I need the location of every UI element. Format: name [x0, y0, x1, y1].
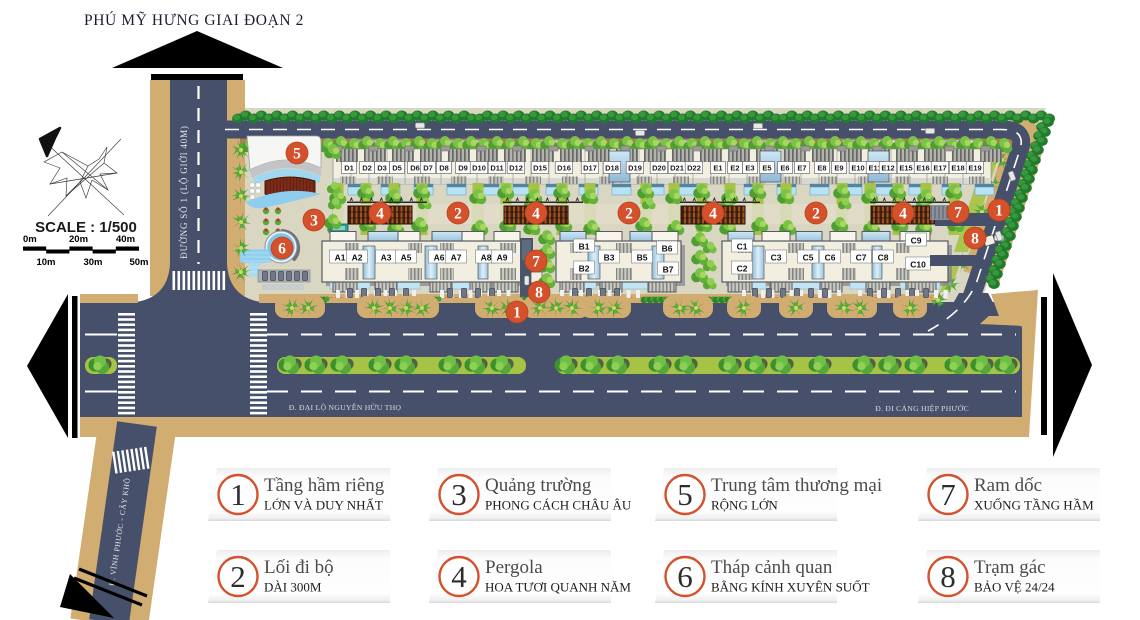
svg-text:B3: B3 [604, 253, 615, 263]
svg-text:A8: A8 [481, 253, 492, 263]
svg-text:D20: D20 [652, 164, 666, 173]
svg-text:C6: C6 [825, 253, 836, 263]
svg-text:50m: 50m [129, 257, 148, 268]
svg-text:D18: D18 [605, 164, 619, 173]
svg-text:B1: B1 [579, 242, 590, 252]
svg-text:E7: E7 [797, 164, 806, 173]
svg-text:B2: B2 [579, 264, 590, 274]
svg-text:4: 4 [899, 206, 907, 223]
svg-text:D17: D17 [583, 164, 597, 173]
svg-text:Ram dốc: Ram dốc [974, 475, 1042, 496]
svg-text:D12: D12 [509, 164, 523, 173]
svg-text:LỚN VÀ DUY NHẤT: LỚN VÀ DUY NHẤT [264, 498, 383, 513]
svg-text:BẢO VỆ 24/24: BẢO VỆ 24/24 [974, 580, 1055, 595]
svg-text:2: 2 [230, 559, 246, 594]
svg-text:5: 5 [677, 477, 693, 512]
svg-text:D16: D16 [557, 164, 571, 173]
svg-text:E2: E2 [730, 164, 739, 173]
svg-text:BẰNG KÍNH XUYÊN SUỐT: BẰNG KÍNH XUYÊN SUỐT [711, 580, 870, 595]
svg-text:A3: A3 [381, 253, 392, 263]
svg-text:E5: E5 [762, 164, 771, 173]
svg-text:1: 1 [230, 477, 246, 512]
svg-text:XUỐNG TẦNG HẦM: XUỐNG TẦNG HẦM [974, 498, 1094, 513]
svg-text:E9: E9 [834, 164, 843, 173]
svg-text:D5: D5 [392, 164, 402, 173]
svg-text:ĐƯỜNG SỐ 1 (LỘ GIỚI 40M): ĐƯỜNG SỐ 1 (LỘ GIỚI 40M) [179, 125, 189, 258]
svg-text:B6: B6 [662, 244, 673, 254]
svg-text:5: 5 [293, 146, 301, 163]
svg-text:D3: D3 [377, 164, 387, 173]
svg-text:Trung tâm thương mại: Trung tâm thương mại [711, 475, 882, 496]
svg-text:E8: E8 [817, 164, 826, 173]
svg-text:D6: D6 [410, 164, 420, 173]
svg-text:Pergola: Pergola [485, 557, 543, 578]
svg-text:C2: C2 [737, 264, 748, 274]
svg-text:DÀI 300M: DÀI 300M [264, 580, 322, 595]
svg-text:3: 3 [310, 213, 318, 230]
svg-text:D11: D11 [490, 164, 503, 173]
svg-text:A1: A1 [335, 253, 346, 263]
svg-text:A6: A6 [434, 253, 445, 263]
svg-text:Đ. ĐẠI LỘ NGUYỄN HỮU THỌ: Đ. ĐẠI LỘ NGUYỄN HỮU THỌ [289, 401, 402, 412]
svg-text:4: 4 [376, 206, 384, 223]
svg-text:2: 2 [625, 206, 633, 223]
svg-text:E16: E16 [916, 164, 929, 173]
svg-text:Tầng hầm riêng: Tầng hầm riêng [264, 475, 385, 496]
svg-text:D2: D2 [362, 164, 372, 173]
svg-text:1: 1 [995, 203, 1003, 220]
svg-text:B7: B7 [663, 265, 674, 275]
svg-text:D21: D21 [670, 164, 684, 173]
svg-text:C1: C1 [737, 242, 748, 252]
svg-text:E15: E15 [899, 164, 912, 173]
svg-text:D1: D1 [344, 164, 354, 173]
svg-text:HOA TƯƠI QUANH NĂM: HOA TƯƠI QUANH NĂM [485, 580, 631, 595]
svg-text:D15: D15 [533, 164, 547, 173]
svg-text:8: 8 [971, 231, 979, 248]
svg-text:C7: C7 [856, 253, 867, 263]
svg-text:D19: D19 [628, 164, 642, 173]
svg-text:C8: C8 [878, 253, 889, 263]
svg-text:8: 8 [940, 559, 956, 594]
svg-text:E12: E12 [881, 164, 894, 173]
svg-text:3: 3 [451, 477, 467, 512]
svg-text:E17: E17 [933, 164, 946, 173]
svg-text:8: 8 [535, 285, 543, 302]
svg-text:7: 7 [940, 477, 956, 512]
svg-text:RỘNG LỚN: RỘNG LỚN [711, 498, 778, 513]
svg-text:D8: D8 [439, 164, 449, 173]
svg-text:C3: C3 [771, 253, 782, 263]
svg-text:4: 4 [451, 559, 467, 594]
svg-text:PHONG CÁCH CHÂU ÂU: PHONG CÁCH CHÂU ÂU [485, 498, 632, 513]
svg-text:1: 1 [513, 305, 521, 322]
svg-text:40m: 40m [116, 234, 135, 245]
svg-text:Tháp cảnh quan: Tháp cảnh quan [711, 557, 833, 578]
svg-text:6: 6 [278, 241, 286, 258]
svg-text:7: 7 [954, 205, 962, 222]
svg-text:A7: A7 [451, 253, 462, 263]
svg-text:D22: D22 [687, 164, 701, 173]
svg-text:10m: 10m [36, 257, 55, 268]
svg-text:6: 6 [677, 559, 693, 594]
svg-text:C5: C5 [803, 253, 814, 263]
svg-text:0m: 0m [23, 234, 37, 245]
svg-text:E18: E18 [951, 164, 964, 173]
svg-text:7: 7 [532, 254, 540, 271]
svg-text:A5: A5 [401, 253, 412, 263]
svg-text:2: 2 [812, 206, 820, 223]
svg-text:2: 2 [454, 206, 462, 223]
svg-text:Quảng trường: Quảng trường [485, 475, 592, 496]
svg-text:Lối đi bộ: Lối đi bộ [264, 557, 334, 578]
svg-text:A2: A2 [352, 253, 363, 263]
svg-text:4: 4 [709, 206, 717, 223]
svg-text:Trạm gác: Trạm gác [974, 557, 1046, 578]
svg-text:E10: E10 [851, 164, 864, 173]
svg-text:Đ. ĐI CẢNG HIỆP PHƯỚC: Đ. ĐI CẢNG HIỆP PHƯỚC [875, 403, 969, 413]
svg-text:4: 4 [532, 206, 540, 223]
svg-text:C9: C9 [911, 236, 922, 246]
svg-text:E1: E1 [713, 164, 722, 173]
svg-text:E3: E3 [745, 164, 754, 173]
svg-text:20m: 20m [69, 234, 88, 245]
svg-text:B5: B5 [637, 253, 648, 263]
svg-text:D10: D10 [472, 164, 486, 173]
svg-text:E6: E6 [780, 164, 789, 173]
svg-text:30m: 30m [83, 257, 102, 268]
svg-text:E19: E19 [968, 164, 981, 173]
svg-text:PHÚ MỸ HƯNG GIAI ĐOẠN 2: PHÚ MỸ HƯNG GIAI ĐOẠN 2 [84, 12, 304, 29]
svg-text:D9: D9 [458, 164, 468, 173]
svg-text:A9: A9 [497, 253, 508, 263]
svg-text:D7: D7 [423, 164, 433, 173]
svg-text:C10: C10 [910, 260, 926, 270]
